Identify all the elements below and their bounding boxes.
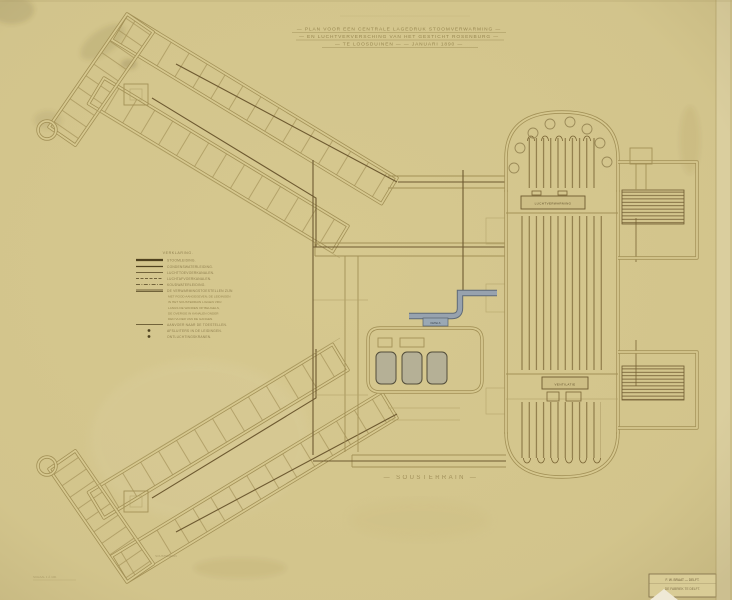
title-line-3: — TE LOOSDUINEN — — JANUARI 1890 — (335, 42, 463, 48)
legend-note-line: DEN VLOER VAN DE GANGEN. (168, 317, 213, 321)
radiator-upper (622, 190, 684, 224)
legend-label: AFSLUITERS IN DE LEIDINGEN. (167, 329, 222, 333)
legend-note-line: LANGS DE WANDEN OP BEUGELS, (168, 306, 220, 310)
svg-text:SCHAAL 1 À 100.: SCHAAL 1 À 100. (33, 575, 57, 579)
wing-room-label: SOUSTERRAIN (155, 554, 177, 558)
heating-coils-lower (521, 402, 601, 458)
scanned-drawing-page: — PLAN VOOR EEN CENTRALE LAGEDRUK STOOMV… (0, 0, 732, 600)
boiler (376, 352, 396, 384)
signature-line-2: DE FABRIEK TE DELFT. (665, 587, 700, 591)
floor-label: — SOUSTERRAIN — (384, 475, 479, 481)
heating-coils-nave (516, 216, 604, 370)
legend-note-line: MET ROOD AANGEGEVEN; DE LEIDINGEN (168, 295, 231, 299)
hall-lower-label: VENTILATIE (555, 383, 576, 387)
heating-coils-apse (524, 138, 596, 188)
boiler-label-box: KETELS (423, 318, 448, 326)
title-line-2: — EN LUCHTVERVERSCHING VAN HET GESTICHT … (299, 34, 499, 40)
legend-label: LUCHTTOEVOERKANALEN. (167, 271, 214, 275)
valve-dot-icon (148, 335, 151, 338)
legend-label: CONDENSWATERLEIDING. (167, 265, 213, 269)
legend-header: VERKLARING. (163, 251, 194, 255)
hall-upper-label: LUCHTVERWARMING (535, 202, 572, 206)
legend-label: STOOMLEIDING. (167, 259, 196, 263)
radiator-lower (622, 366, 684, 400)
signature-line-1: F. W. BRAAT — DELFT. (666, 578, 700, 582)
legend-note-line: IN HET SOUSTERRAIN LIGGEN VRIJ (168, 300, 222, 304)
legend-label: ONTLUCHTINGSKRANEN. (167, 335, 211, 339)
boiler-label: KETELS (431, 321, 441, 325)
valve-dot-icon (148, 329, 151, 332)
boiler (427, 352, 447, 384)
legend-label: DE VERWARMINGSTOESTELLEN ZIJN (167, 289, 233, 293)
legend-note-line: DE OVERIGE IN KANALEN ONDER (168, 311, 219, 315)
legend-label: AANVOER NAAR DE TOESTELLEN. (167, 323, 227, 327)
title-line-1: — PLAN VOOR EEN CENTRALE LAGEDRUK STOOMV… (297, 27, 501, 33)
floor-plan-scan: — PLAN VOOR EEN CENTRALE LAGEDRUK STOOMV… (0, 0, 732, 600)
boiler (402, 352, 422, 384)
legend-label: KOUDWATERLEIDING. (167, 283, 206, 287)
legend-label: LUCHTAFVOERKANALEN. (167, 277, 211, 281)
